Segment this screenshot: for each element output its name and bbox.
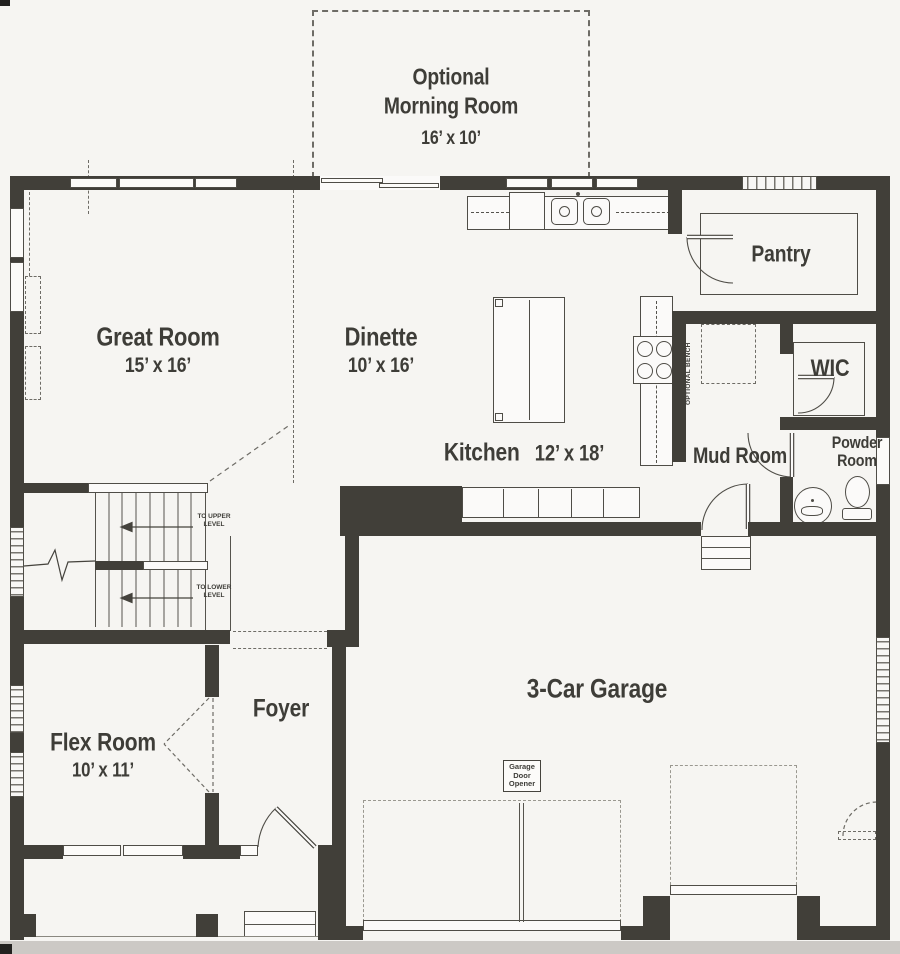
wall-pantry-bottom [672, 311, 890, 324]
wall-garage-west [345, 536, 359, 647]
stair-arrow-upper [121, 523, 193, 532]
window-sidelight [240, 845, 258, 856]
wall-below-stairs [10, 630, 230, 644]
morning-room-dims: 16’ x 10’ [421, 128, 481, 150]
dashed-diagonal [210, 424, 291, 481]
foyer-label: Foyer [253, 695, 309, 724]
pantry-door-arc [687, 237, 733, 283]
mudroom-door-arc [702, 484, 748, 530]
dinette-label: Dinette [345, 322, 418, 353]
morning-room-label-line1: Optional [412, 64, 489, 91]
window [195, 178, 237, 188]
wall-garage-west [332, 645, 346, 860]
garage-door-pier [643, 896, 670, 940]
wall-flex-east [205, 645, 219, 697]
stair-arrow-lower [121, 594, 193, 603]
optional-bench-label: OPTIONAL BENCH [685, 327, 692, 405]
window-hatched [742, 176, 817, 190]
wall-segment [668, 188, 682, 234]
front-door-arc [258, 808, 276, 847]
garage-label: 3-Car Garage [527, 674, 667, 705]
garage-door-opener-sign: Garage Door Opener [503, 760, 541, 792]
wall-front [183, 845, 240, 859]
wall-pier [327, 630, 347, 647]
window [123, 845, 183, 856]
stair-landing-mid [143, 561, 208, 570]
kitchen-label-row: Kitchen12’ x 18’ [444, 439, 604, 468]
dinette-dims: 10’ x 16’ [348, 354, 414, 378]
wall-flex-east [205, 793, 219, 845]
window-hatched [10, 527, 24, 597]
pantry-label: Pantry [751, 241, 810, 268]
scan-mark [0, 0, 10, 6]
wall-wic-powder-divider [780, 417, 890, 430]
wall-segment [780, 477, 793, 525]
flex-room-label: Flex Room [50, 729, 156, 758]
window [506, 178, 548, 188]
kitchen-label: Kitchen [444, 439, 520, 467]
wic-label: WIC [811, 355, 850, 383]
garage-door-pier [797, 896, 820, 940]
powder-room-label-line2: Room [837, 451, 877, 471]
window-hatched [10, 752, 24, 797]
wall-garage-bottom [345, 926, 363, 940]
kitchen-dims: 12’ x 18’ [535, 441, 604, 466]
scan-edge-bar [0, 941, 900, 954]
front-door-leaf-inner [276, 808, 315, 847]
stair-mid-landing-wall [95, 561, 143, 570]
wall-stairs-top [10, 483, 88, 493]
window [70, 178, 117, 188]
stair-landing-top [88, 483, 208, 493]
window [10, 208, 24, 258]
wall-front [10, 845, 63, 859]
wall-right [876, 176, 890, 940]
porch-column [196, 914, 218, 937]
to-lower-level-label: TO LOWER LEVEL [194, 584, 234, 599]
window [551, 178, 593, 188]
service-door-arc [843, 802, 877, 836]
window [119, 178, 194, 188]
window-hatched [10, 685, 24, 733]
wall-garage-bottom [820, 926, 890, 940]
sliding-door-panel [379, 183, 439, 188]
flex-french-doors [164, 698, 213, 792]
kitchen-corner-block [340, 486, 462, 536]
scan-mark [0, 944, 12, 954]
great-room-label: Great Room [96, 322, 219, 353]
sliding-door-panel [321, 178, 383, 183]
flex-room-dims: 10’ x 11’ [72, 760, 134, 783]
break-line [24, 550, 95, 580]
window-hatched [876, 637, 890, 743]
mud-room-label: Mud Room [693, 443, 787, 469]
porch-column [13, 914, 36, 937]
wall-segment [780, 324, 793, 354]
window [10, 262, 24, 312]
great-room-dims: 15’ x 16’ [125, 354, 191, 378]
wall-garage-north [748, 522, 890, 536]
to-upper-level-label: TO UPPER LEVEL [194, 513, 234, 528]
powder-room-label-line1: Powder [832, 433, 883, 453]
floor-plan: Optional Morning Room 16’ x 10’ Great Ro… [0, 0, 900, 954]
window [63, 845, 121, 856]
wall-front-corner [318, 845, 346, 940]
garage-door-pier [621, 926, 645, 940]
window [596, 178, 638, 188]
morning-room-label-line2: Morning Room [384, 93, 518, 120]
stair-treads [109, 493, 191, 627]
wall-mudroom-west [672, 324, 686, 462]
